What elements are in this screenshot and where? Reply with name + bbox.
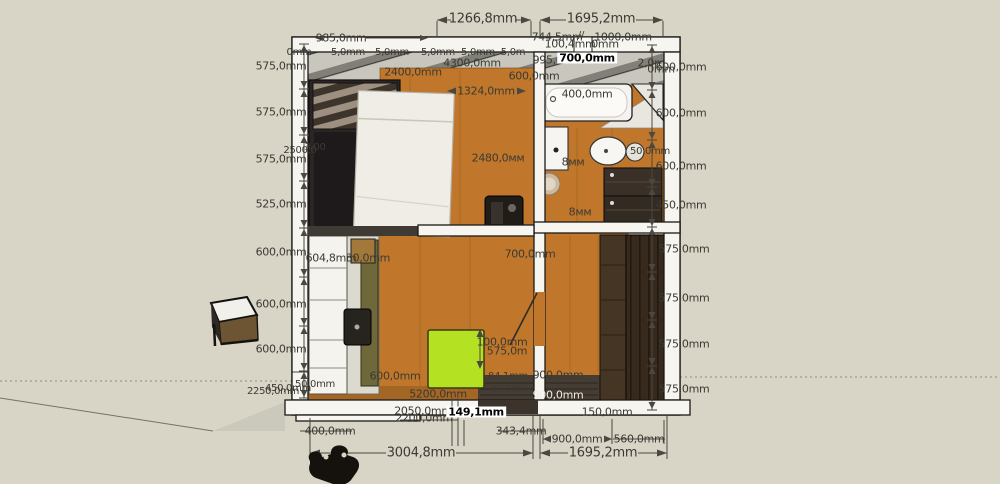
wardrobe[interactable]: [626, 235, 664, 402]
top-wall-window: [574, 37, 592, 52]
kitchen-sink: [344, 309, 371, 345]
bathtub[interactable]: [541, 84, 632, 121]
sink[interactable]: [544, 127, 568, 170]
kitchen-wood-box: [351, 239, 375, 263]
bedroom-divider: [418, 225, 534, 236]
model-viewport[interactable]: 1266,8mm1695,2mm985,0mm744,5mm//1000,0mm…: [0, 0, 1000, 484]
door-opening: [534, 292, 545, 346]
left-wall: [292, 52, 308, 400]
slab-edge: [213, 402, 285, 431]
bath-wall: [534, 222, 680, 233]
cistern: [626, 143, 644, 161]
floor-plan-drawing: [0, 0, 1000, 484]
stool[interactable]: [211, 297, 258, 346]
bed[interactable]: [353, 91, 454, 237]
bottom-door-gap: [478, 400, 538, 414]
washer-dryer-stack[interactable]: [604, 168, 662, 224]
green-table[interactable]: [428, 330, 484, 388]
shelf-unit[interactable]: [600, 235, 626, 402]
bedroom-divider-dark: [308, 226, 418, 236]
top-wall: [292, 37, 680, 52]
leader-line: [0, 398, 213, 431]
kitchen-cabinets[interactable]: [309, 236, 379, 394]
